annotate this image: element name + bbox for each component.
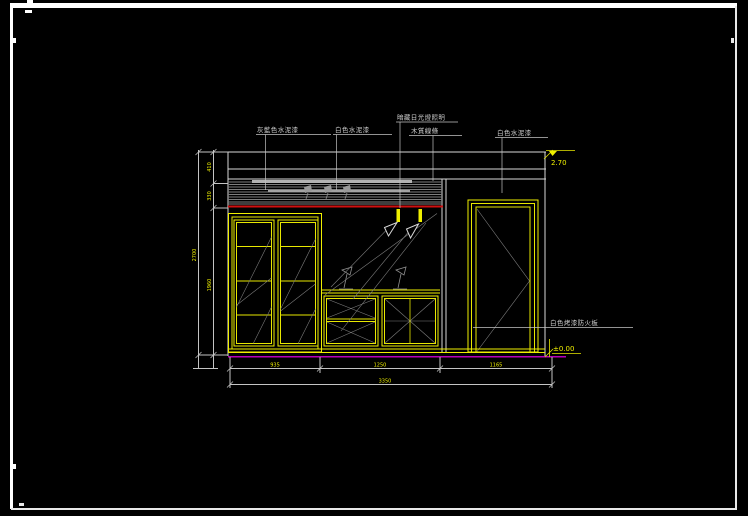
dim-left-total: 2700 <box>192 249 198 262</box>
frame-mark <box>13 464 16 469</box>
label-fireproof-board: 白色烤漆防火板 <box>550 318 598 327</box>
label-paint-white-2: 白色水泥漆 <box>497 128 532 137</box>
dim-left-seg1: 410 <box>207 162 213 172</box>
dim-bottom-seg3: 1165 <box>490 363 503 369</box>
ceiling-level-value: 2.70 <box>551 159 567 167</box>
slat-highlight <box>252 180 412 183</box>
ceiling-level-marker: 2.70 <box>544 150 575 167</box>
decor-item-icon <box>393 267 407 289</box>
decor-item-icon <box>339 267 353 289</box>
label-concealed-light: 暗藏日光燈照明 <box>397 113 445 122</box>
floor-level-value: ±0.00 <box>553 345 574 353</box>
left-dimension-chain: 410 330 1960 2700 <box>192 149 228 369</box>
bottom-dimension-chain: 935 1250 1165 3350 <box>227 357 555 388</box>
door-swing <box>477 209 530 352</box>
dim-bottom-seg1: 935 <box>270 363 280 369</box>
floor-level-marker: ±0.00 <box>545 339 581 357</box>
slat-highlight <box>268 190 410 192</box>
arrow-icon <box>385 223 398 237</box>
counter-decor <box>339 267 407 289</box>
frame-mark <box>731 38 734 43</box>
frame-mark <box>13 38 16 43</box>
cabinet-door <box>234 220 274 346</box>
elevation-drawing: 灰藍色水泥漆 白色水泥漆 暗藏日光燈照明 木質線條 白色水泥漆 白色烤漆防火板 … <box>0 0 748 516</box>
label-wood-trim: 木質線條 <box>411 126 439 135</box>
light-bar <box>397 209 401 222</box>
slat-ceiling-band <box>228 180 443 207</box>
label-paint-greyblue: 灰藍色水泥漆 <box>257 125 298 134</box>
frame-mark <box>19 503 24 506</box>
dim-left-seg3: 1960 <box>207 279 213 292</box>
cad-viewport: 灰藍色水泥漆 白色水泥漆 暗藏日光燈照明 木質線條 白色水泥漆 白色烤漆防火板 … <box>0 0 748 516</box>
dim-bottom-seg2: 1250 <box>374 363 387 369</box>
arrow-icon <box>407 224 419 238</box>
panel-cross-lines <box>327 299 435 343</box>
middle-cabinet <box>322 290 440 346</box>
drawer-unit <box>324 296 378 346</box>
page-frame <box>10 0 737 510</box>
dim-left-seg2: 330 <box>207 191 213 201</box>
light-bar <box>419 209 423 222</box>
frame-mark <box>25 10 32 13</box>
frame-mark <box>27 0 33 3</box>
dim-bottom-total: 3350 <box>379 379 392 385</box>
cabinet-door <box>278 220 318 346</box>
label-paint-white-1: 白色水泥漆 <box>335 125 370 134</box>
base-and-floor <box>228 349 566 357</box>
door-panel <box>468 200 538 352</box>
